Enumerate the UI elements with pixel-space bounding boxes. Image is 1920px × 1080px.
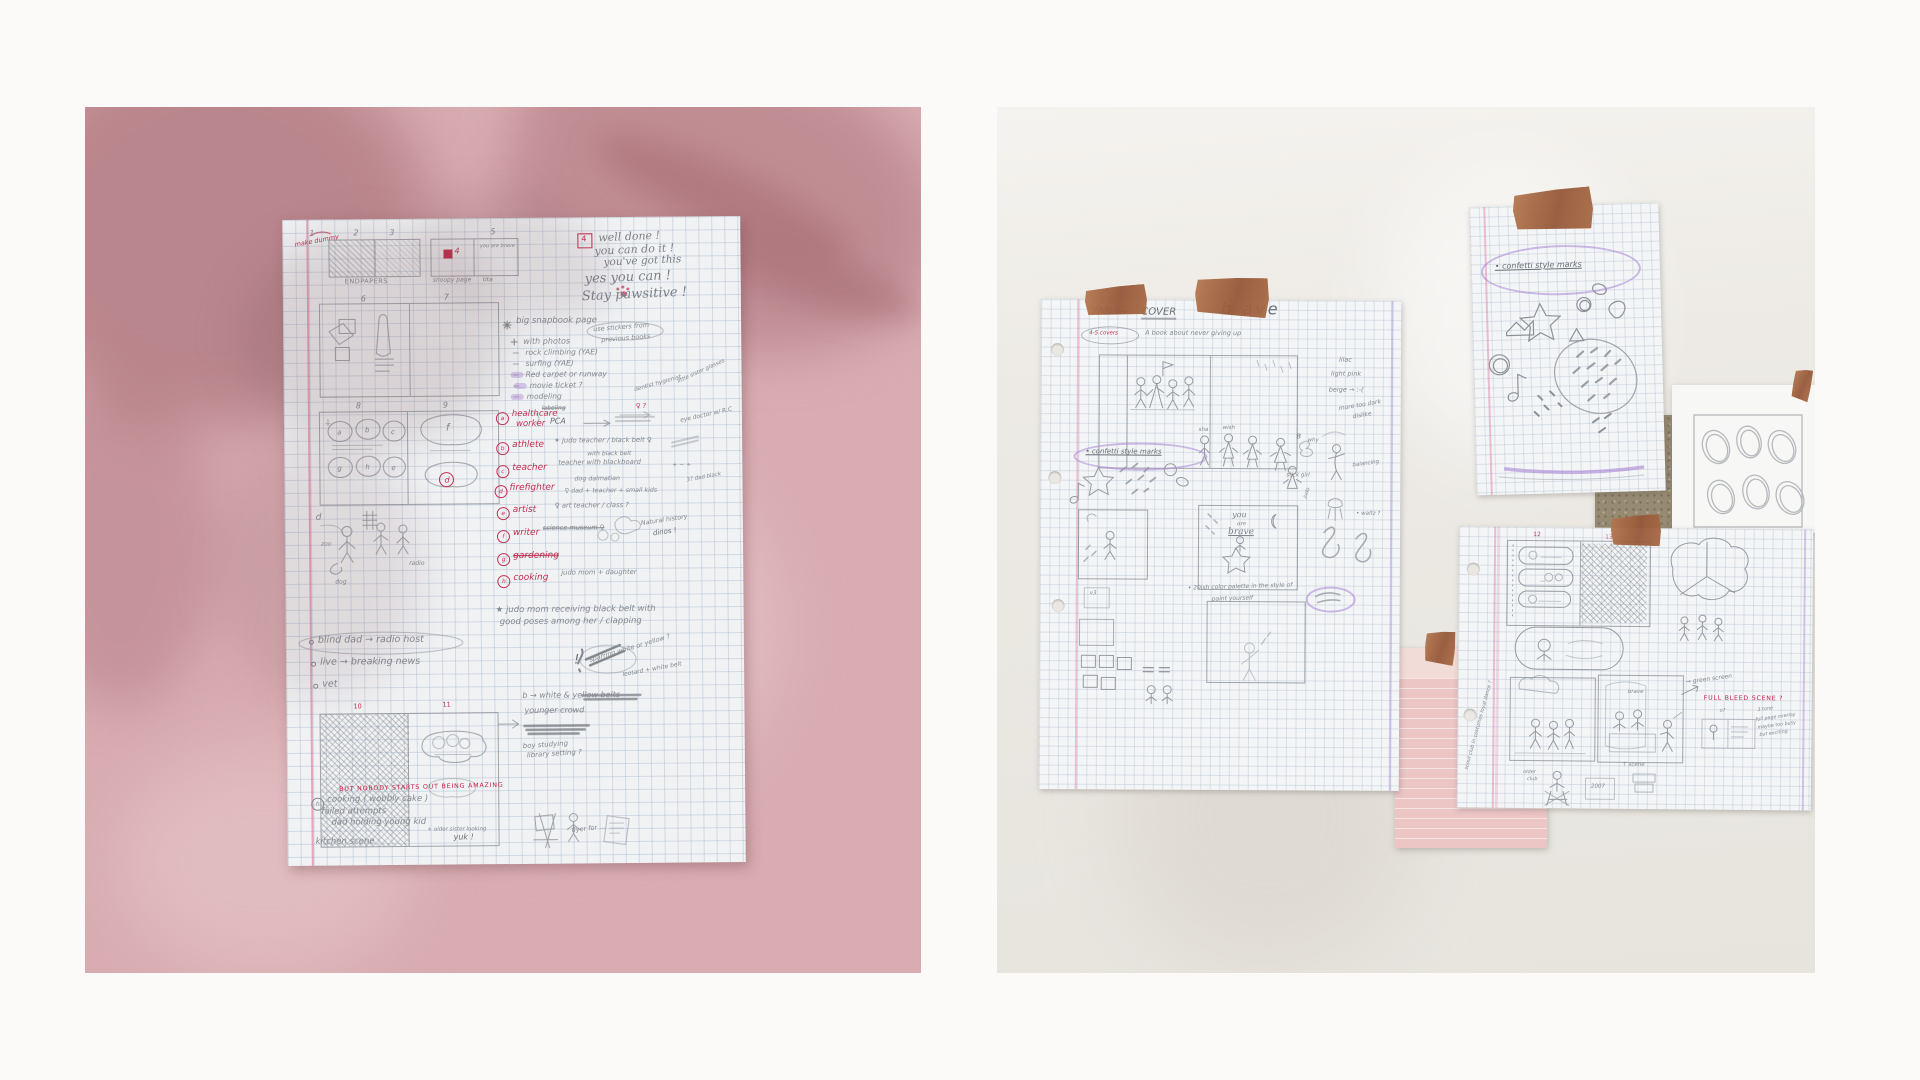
idea-item: rock climbing (YAE) (525, 348, 598, 357)
profession-label: worker (516, 420, 545, 430)
boxed-number: 4 (577, 233, 592, 248)
profession-label: firefighter (509, 483, 554, 493)
ovals-sketch (1672, 385, 1815, 533)
mini-cover-text: you are brave (479, 243, 515, 250)
profession-note: judo mom + daughter (561, 569, 636, 577)
frame-number: 9 (443, 402, 448, 411)
figure-label: B (1297, 433, 1302, 440)
list-letter-text: d (499, 488, 503, 495)
frame-number-red: 11 (442, 702, 450, 709)
profession-note: ✶ judo teacher / black belt ♀ (554, 437, 652, 445)
left-photo-pink-wall: a b c g h e f d 1 2 3 5 make dummy ENDPA… (85, 107, 921, 973)
list-letter-text: e (501, 510, 505, 517)
profession-note: ♀ art teacher / class ? (555, 502, 629, 510)
figure-label: sha (1199, 427, 1209, 433)
ideas-title: big snapbook page (516, 316, 597, 326)
belt-note: younger crowd (524, 706, 584, 715)
frame-number-red: 10 (353, 703, 361, 710)
caption-tita: tita (483, 277, 493, 284)
cooking-line: cooking ( wobbly cake ) (327, 795, 428, 805)
storyboard-sheet: 12 13 (1457, 526, 1813, 810)
idea-item: surfing (YAE) (525, 359, 573, 368)
list-letter-text: f (502, 533, 504, 540)
profession-label: teacher (512, 463, 547, 473)
cooking-line: failed attempts (321, 807, 386, 817)
frame-number: 2 (353, 229, 358, 238)
list-letter-text: c (501, 468, 504, 475)
right-photo-white-wall: • confetti style marks (997, 107, 1815, 973)
note-crossed: labeling (542, 406, 566, 413)
frame-divider (409, 304, 411, 396)
profession-note: teacher with blackboard (558, 459, 641, 467)
purple-circle-annotation (1306, 586, 1356, 612)
frame-number: 5 (490, 228, 495, 237)
list-letter-text: g (502, 556, 506, 563)
red-square-mark (443, 250, 452, 259)
bullet-note: vet (322, 680, 337, 691)
hatched-panel (375, 240, 419, 276)
spread-frame (319, 302, 500, 398)
washi-tape (1424, 630, 1456, 666)
color-note: beige → :-( (1329, 387, 1364, 394)
sketch-label: zoo (321, 542, 332, 549)
bullet-note: blind dad → radio host (318, 635, 424, 647)
list-letter-text: b (501, 445, 505, 452)
figure-label: why (1308, 437, 1319, 443)
full-bleed-note: FULL BLEED SCENE ? (1704, 696, 1784, 704)
purple-highlight (511, 372, 524, 378)
confetti-sheet: • confetti style marks (1469, 203, 1665, 496)
figure-label: • waltz ? (1356, 511, 1380, 517)
boxed-number-text: 4 (581, 235, 586, 244)
v3-label: v3 (1090, 590, 1097, 596)
leaf-shadow (85, 377, 215, 707)
list-letter: h (497, 575, 510, 588)
profession-note: dog dalmatian (574, 475, 620, 482)
caption-snoopy: snoopy page (433, 277, 472, 284)
profession-label: cooking (513, 573, 548, 583)
profession-note: + − ÷ (672, 462, 691, 469)
cooking-line: dad holding young kid (331, 818, 426, 828)
list-letter: b (496, 442, 509, 455)
hatched-panel (329, 240, 375, 276)
washi-tape (1194, 276, 1269, 319)
judo-note: good poses among her / clapping (500, 617, 642, 628)
washi-tape (1512, 186, 1595, 233)
bullet-dot (311, 662, 316, 667)
cooking-line: yuk ! (454, 833, 474, 842)
figure-label: stick girl (1286, 472, 1309, 478)
confetti-note: • confetti style marks (1085, 448, 1161, 456)
purple-highlight (511, 394, 524, 400)
bullet-dot (313, 684, 318, 689)
sketch-label: radio (409, 561, 424, 568)
figure-label: wish (1223, 425, 1235, 431)
list-letter: a (496, 412, 509, 425)
red-mark: ♀ ? (636, 403, 646, 410)
sketch-label: dog (335, 579, 346, 586)
cover-planning-sheet: YAB → COVER 4-5 covers A book about neve… (1039, 299, 1402, 791)
washi-tape (1610, 514, 1661, 548)
cooking-line: kitchen scene (316, 837, 375, 847)
washi-tape (1084, 284, 1148, 318)
scene-label: ↑ scene (1622, 762, 1645, 768)
list-letter: c (496, 465, 509, 478)
list-letter: e (497, 507, 510, 520)
profession-label: artist (513, 505, 537, 515)
profession-label: athlete (512, 440, 544, 450)
you-are-brave: you (1232, 511, 1247, 520)
judo-note: ★ judo mom receiving black belt with (496, 605, 656, 616)
idea-item: Red carpet or runway (526, 370, 607, 379)
title-spread-frame: 4 you are brave (430, 238, 518, 277)
frame-number: 8 (356, 402, 361, 411)
profession-note: PCA (550, 418, 566, 427)
spread-frame (319, 410, 500, 506)
color-note: lilac (1339, 357, 1352, 364)
idea-item: modeling (527, 393, 562, 402)
ovals-sketch-sheet (1672, 385, 1815, 533)
year-label: 2007 (1591, 784, 1605, 790)
older-club-label: club (1527, 777, 1538, 783)
brave-frame-small (1078, 509, 1148, 579)
sketch-frame (1206, 601, 1305, 684)
list-letter-text: a (501, 415, 505, 422)
belt-note: b → white & yellow belts (522, 691, 620, 701)
profession-note: ♀ dad + teacher + small kids (565, 487, 658, 495)
endpapers-frame (328, 239, 420, 278)
you-are-brave: brave (1228, 527, 1254, 537)
frame-divider (473, 239, 474, 275)
confetti-doodles (1469, 203, 1665, 496)
brave-frame-main (1198, 505, 1298, 591)
list-letter-text: h (502, 578, 506, 585)
profession-label-crossed: gardening (513, 551, 559, 561)
panel-mark: o? (1720, 709, 1726, 715)
color-note: light pink (1331, 371, 1361, 378)
list-letter: d (495, 485, 508, 498)
purple-highlight (514, 383, 527, 389)
older-club-label: older (1523, 770, 1536, 776)
red-number: 4 (454, 247, 459, 256)
frame-number: 7 (444, 294, 449, 303)
brave-label: brave (1628, 689, 1644, 695)
bullet-note: live → breaking news (320, 657, 420, 668)
storyboard-page: a b c g h e f d 1 2 3 5 make dummy ENDPA… (282, 216, 746, 866)
profession-note: with black belt (587, 451, 631, 458)
idea-item: movie ticket ? (530, 381, 583, 390)
exclamation: ! (574, 653, 579, 668)
list-letter: f (497, 530, 510, 543)
letter-note: d (316, 513, 322, 523)
idea-item: with photos (523, 338, 570, 347)
palette-note: paint yourself (1212, 595, 1253, 603)
bullet-dot (309, 640, 314, 645)
caption-endpapers: ENDPAPERS (345, 278, 388, 286)
frame-number: 3 (389, 229, 394, 238)
profession-label: writer (513, 528, 539, 538)
list-letter: g (497, 553, 510, 566)
circled-letter-text: h (316, 801, 320, 808)
note-crossed: science museum ♀ (543, 524, 605, 532)
frame-divider (407, 412, 409, 504)
